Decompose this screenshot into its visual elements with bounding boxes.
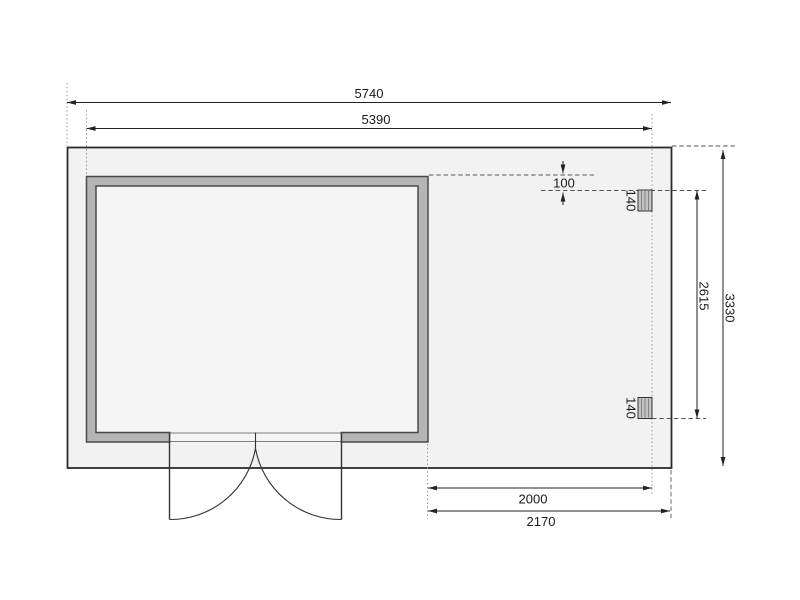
- technical-drawing-canvas: 5740 5390 100 140 140 2615 3330 2000 217…: [0, 0, 800, 600]
- shed-floor-plan: 5740 5390 100 140 140 2615 3330 2000 217…: [0, 0, 800, 600]
- dim-roof-offset-label: 100: [553, 176, 575, 191]
- shed-interior: [96, 186, 418, 433]
- post-top: [638, 190, 652, 211]
- post-bottom: [638, 398, 652, 419]
- dim-post-size-top-label: 140: [624, 190, 639, 212]
- dim-post-span-label: 2615: [697, 282, 712, 311]
- dim-roof-width: 5390: [87, 112, 653, 129]
- dim-annex-inner-width-label: 2000: [519, 492, 548, 507]
- dim-annex-inner-width: 2000: [428, 488, 652, 507]
- dim-post-span: 2615: [697, 191, 712, 419]
- dim-total-depth-label: 3330: [723, 294, 738, 323]
- dim-total-width-label: 5740: [355, 86, 384, 101]
- dim-annex-total-width-label: 2170: [527, 514, 556, 529]
- dim-total-width: 5740: [67, 86, 671, 103]
- dim-annex-total-width: 2170: [428, 511, 670, 529]
- dim-post-size-bottom-label: 140: [624, 397, 639, 419]
- dim-total-depth: 3330: [723, 150, 738, 466]
- dim-roof-width-label: 5390: [362, 112, 391, 127]
